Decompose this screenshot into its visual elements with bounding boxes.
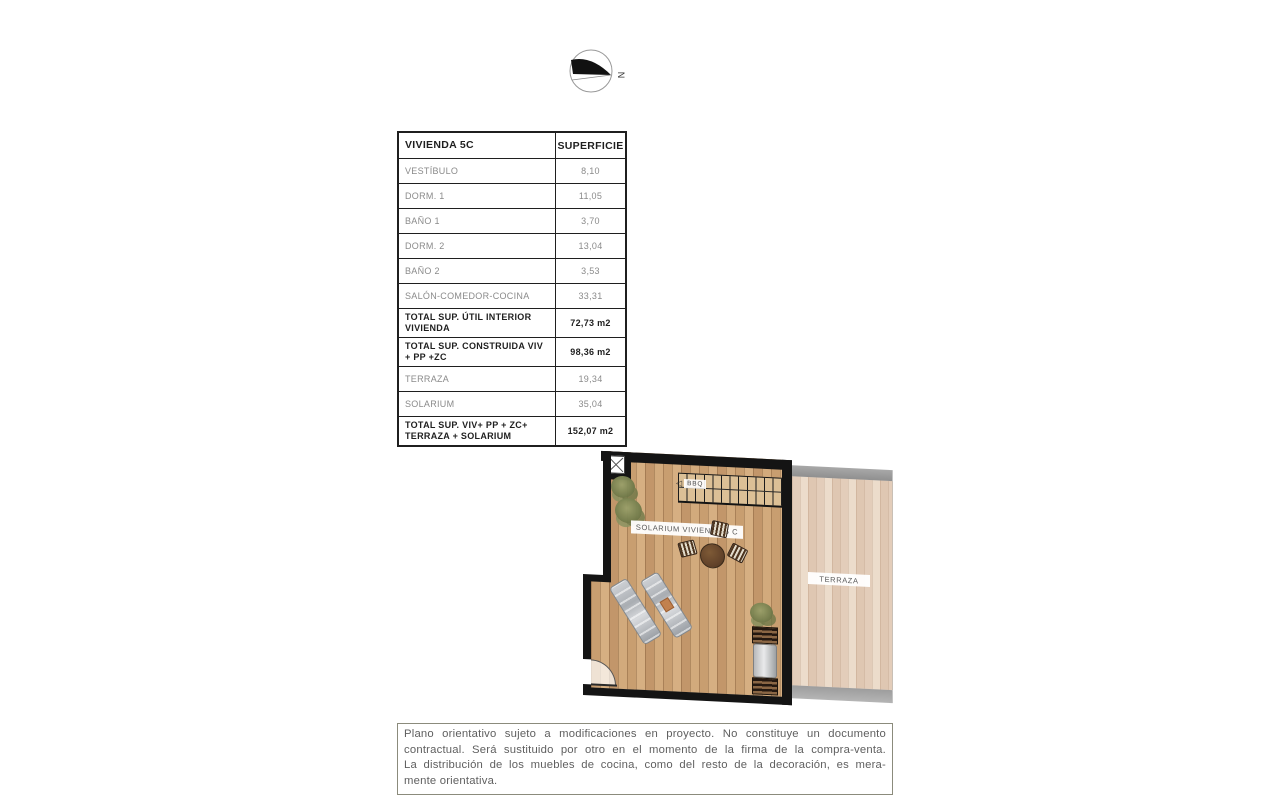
room-label: VESTÍBULO [399,159,555,183]
table-row-dorm1: DORM. 1 11,05 [399,183,625,208]
plan-exterior-notch [583,448,603,579]
wall-left-lower [583,578,591,659]
room-label: BAÑO 1 [399,209,555,233]
total-label: TOTAL SUP. VIV+ PP + ZC+ TERRAZA + SOLAR… [399,417,555,445]
bbq-bench-slats [752,626,778,644]
table-header-unit: VIVIENDA 5C [399,133,555,158]
table-header-row: VIVIENDA 5C SUPERFICIE [399,133,625,158]
total-label: TOTAL SUP. CONSTRUIDA VIV + PP +ZC [399,338,555,366]
stairs-direction-arrow-icon: ◁ [676,479,682,487]
table-row-total-construida: TOTAL SUP. CONSTRUIDA VIV + PP +ZC 98,36… [399,337,625,366]
table-row-salon: SALÓN-COMEDOR-COCINA 33,31 [399,283,625,308]
table-row-bano1: BAÑO 1 3,70 [399,208,625,233]
room-area: 33,31 [555,284,625,308]
room-label: SOLARIUM [399,392,555,416]
stairs-label-row: ◁ BBQ [676,479,706,489]
disclaimer-line: La distribución de los muebles de cocina… [404,758,886,774]
disclaimer-line: contractual. Será sustituido por otro en… [404,743,886,759]
room-area: 3,53 [555,259,625,283]
wall-left-upper [603,451,611,581]
room-area: 19,34 [555,367,625,391]
plant-icon [750,602,773,623]
wall-divider-solarium-terraza [782,460,792,705]
plant-icon [611,475,635,498]
area-table: VIVIENDA 5C SUPERFICIE VESTÍBULO 8,10 DO… [397,131,627,447]
total-area: 152,07 m2 [555,417,625,445]
compass-north-icon: N [562,44,626,100]
total-area: 72,73 m2 [555,309,625,337]
compass-north-label: N [616,72,626,79]
room-label: SALÓN-COMEDOR-COCINA [399,284,555,308]
compass-needle [571,59,611,75]
table-row-total-util: TOTAL SUP. ÚTIL INTERIOR VIVIENDA 72,73 … [399,308,625,337]
room-area: 35,04 [555,392,625,416]
table-row-dorm2: DORM. 2 13,04 [399,233,625,258]
table-row-solarium: SOLARIUM 35,04 [399,391,625,416]
total-area: 98,36 m2 [555,338,625,366]
bbq-unit [753,643,777,678]
total-label: TOTAL SUP. ÚTIL INTERIOR VIVIENDA [399,309,555,337]
room-label: TERRAZA [399,367,555,391]
bbq-bench-slats [752,677,778,695]
table-row-terraza: TERRAZA 19,34 [399,366,625,391]
room-area: 13,04 [555,234,625,258]
room-area: 3,70 [555,209,625,233]
room-area: 8,10 [555,159,625,183]
floor-plan-document-page: N VIVIENDA 5C SUPERFICIE VESTÍBULO 8,10 … [0,0,1280,800]
disclaimer-box: Plano orientativo sujeto a modificacione… [397,723,893,795]
room-label: BAÑO 2 [399,259,555,283]
round-table-icon [700,543,725,569]
floor-plan: ◁ BBQ SOLARIUM VIVIENDA 5 C TERRAZA [583,448,893,713]
bbq-label: BBQ [684,479,706,489]
table-row-vestibulo: VESTÍBULO 8,10 [399,158,625,183]
disclaimer-line: Plano orientativo sujeto a modificacione… [404,727,886,743]
room-label: DORM. 1 [399,184,555,208]
disclaimer-line: mente orientativa. [404,774,886,790]
room-label: DORM. 2 [399,234,555,258]
room-area: 11,05 [555,184,625,208]
table-row-bano2: BAÑO 2 3,53 [399,258,625,283]
table-header-area: SUPERFICIE [555,133,625,158]
table-row-total-general: TOTAL SUP. VIV+ PP + ZC+ TERRAZA + SOLAR… [399,416,625,445]
towel-icon [659,597,674,612]
